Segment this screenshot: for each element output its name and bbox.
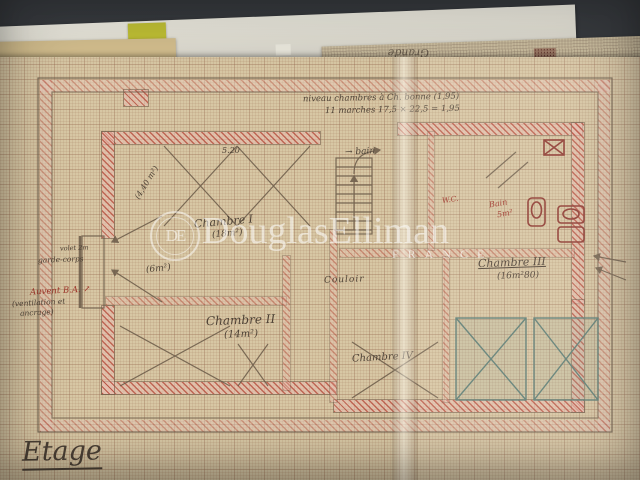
note-volet: volet 2m [60, 245, 89, 253]
note-bain-arrow: → bain [345, 146, 376, 158]
auvent-arrow-icon: ↗ [83, 284, 91, 294]
photo-of-floor-plan: Grande [0, 0, 640, 480]
right-half-light [418, 57, 640, 480]
room-area-chambre2: (14m²) [224, 328, 258, 341]
note-auvent-sub2: ancrage) [20, 308, 54, 318]
watermark-country: FRANCE [392, 247, 493, 262]
paper-fold-crease [392, 57, 418, 480]
watermark-logo-icon: DE [150, 211, 200, 261]
dimension-ch1-width: 5.20 [222, 146, 240, 155]
room-label-couloir: Couloir [324, 274, 365, 286]
watermark-logo-monogram: DE [156, 217, 194, 255]
page-title-etage: Etage [22, 435, 103, 470]
note-garde-corps: garde-corps [38, 255, 84, 265]
note-auvent-text: Auvent B.A. [30, 285, 81, 298]
room-label-chambre2: Chambre II [206, 313, 276, 329]
